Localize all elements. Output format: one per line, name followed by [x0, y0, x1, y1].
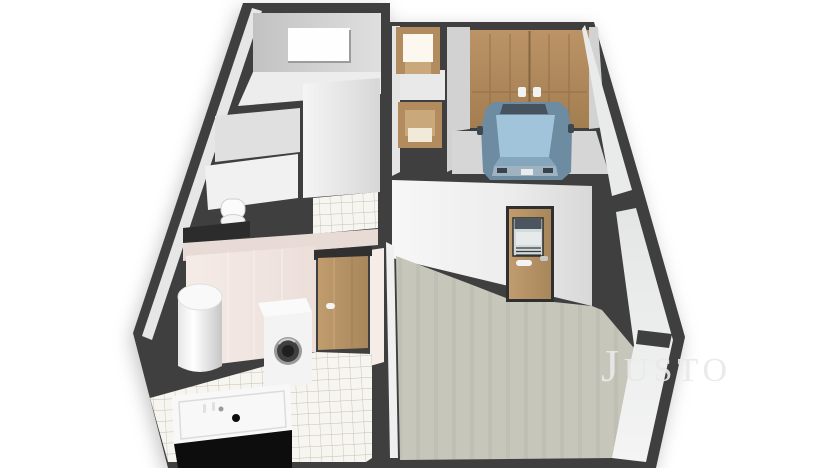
- car-plate: [521, 169, 533, 175]
- floor-plan-image: JUSTO: [0, 0, 832, 468]
- car-roof-glass: [496, 115, 555, 157]
- glazed-door-plate: [516, 260, 532, 266]
- bathroom-east-wall-face: [370, 248, 384, 366]
- car-headlight-left: [497, 168, 507, 173]
- center-room-tile-floor: [313, 192, 378, 234]
- bathroom-door: [314, 246, 372, 350]
- garage-back-wall-left: [456, 27, 470, 131]
- bathtub-drain: [232, 414, 240, 422]
- garage-door-handle-left: [518, 87, 526, 97]
- hall-north-door-sill: [405, 62, 431, 74]
- floor-plan-svg: JUSTO: [0, 0, 832, 468]
- bedroom-window: [288, 28, 350, 62]
- car-mirror-left: [477, 126, 483, 135]
- glazed-door-handle: [540, 256, 548, 261]
- garage-door-handle-right: [533, 87, 541, 97]
- car-rear-window: [500, 104, 548, 114]
- hall-interior-door-light: [408, 128, 432, 142]
- water-heater: [178, 284, 222, 372]
- bathroom-door-handle: [326, 303, 335, 309]
- car: [477, 102, 574, 180]
- hall-north-door-opening: [403, 34, 433, 62]
- car-headlight-right: [543, 168, 553, 173]
- car-hood: [494, 157, 556, 166]
- hall-floor: [400, 70, 445, 100]
- car-mirror-right: [568, 124, 574, 133]
- center-room-wall-face: [303, 78, 380, 198]
- glazed-door-to-garage: [506, 206, 554, 302]
- washing-machine: [258, 298, 312, 389]
